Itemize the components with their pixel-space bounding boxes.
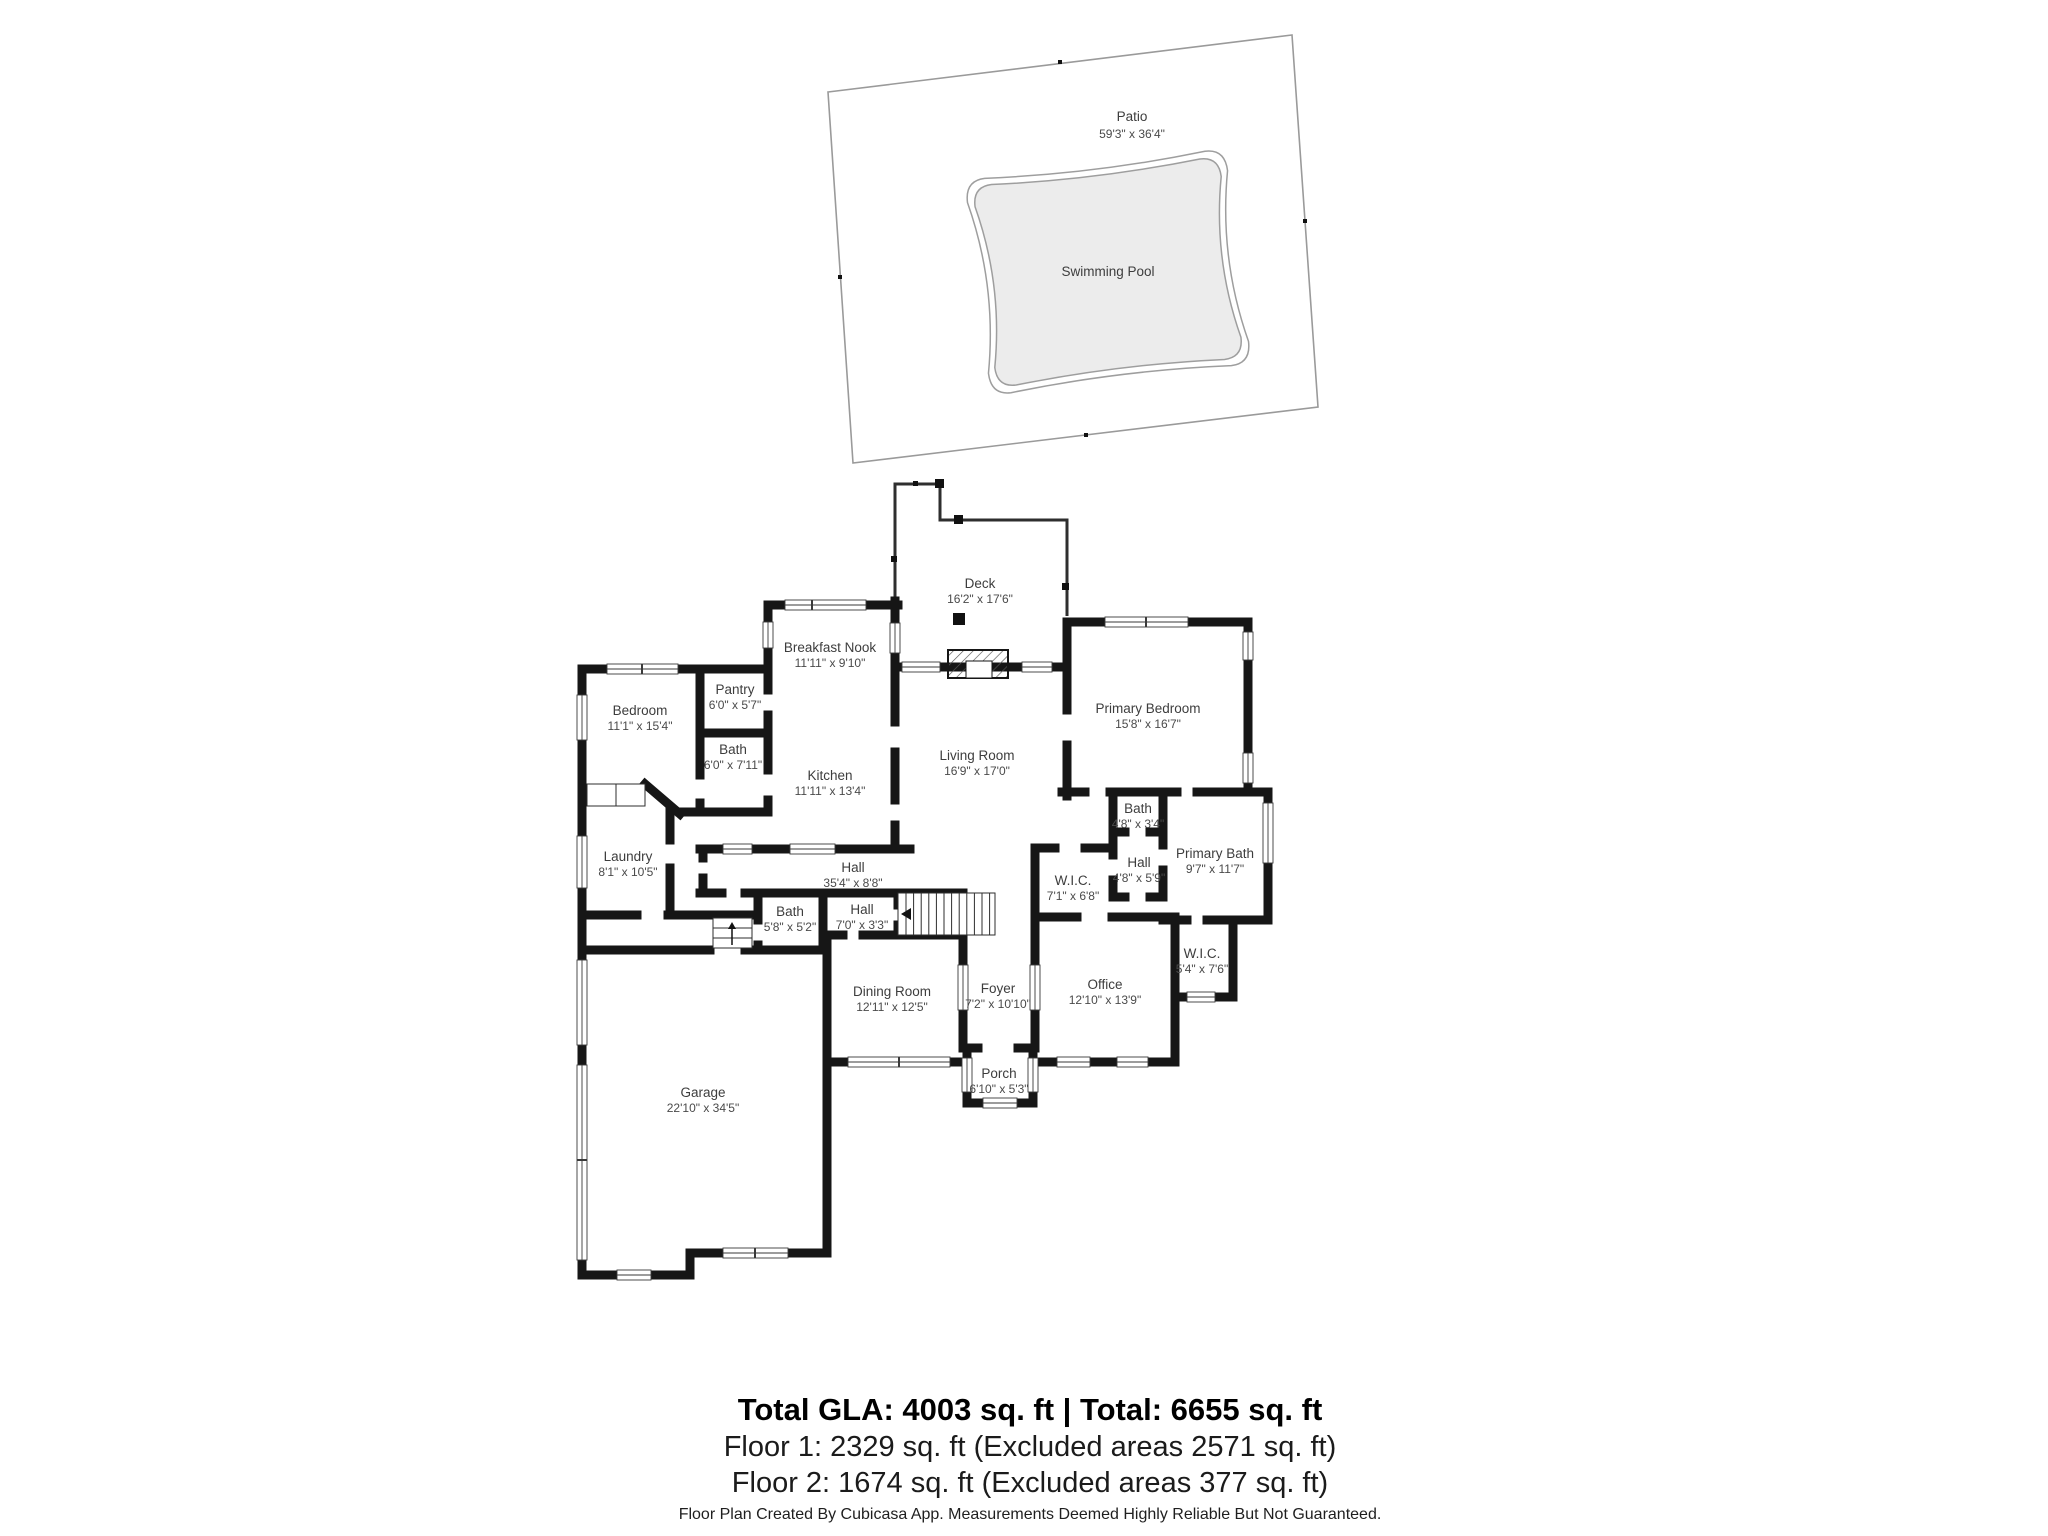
room-dims: 5'4" x 7'6": [1176, 962, 1228, 976]
room-dims: 4'8" x 3'4": [1112, 817, 1164, 831]
room-dims: 7'1" x 6'8": [1047, 889, 1099, 903]
room-label-hall1: Hall35'4" x 8'8": [823, 860, 882, 890]
room-dims: 11'1" x 15'4": [608, 719, 673, 733]
floorplan-canvas: Patio 59'3" x 36'4" Swimming Pool: [0, 0, 2048, 1536]
room-dims: 7'2" x 10'10": [965, 997, 1031, 1011]
room-label-living_room: Living Room16'9" x 17'0": [939, 748, 1014, 778]
room-label-kitchen: Kitchen11'11" x 13'4": [795, 768, 866, 798]
room-label-bath1: Bath6'0" x 7'11": [704, 742, 762, 772]
patio-label: Patio: [1117, 109, 1148, 124]
room-dims: 4'8" x 5'9": [1113, 871, 1165, 885]
room-dims: 16'2" x 17'6": [947, 592, 1013, 606]
room-name: Bedroom: [613, 703, 668, 718]
room-label-deck: Deck16'2" x 17'6": [947, 576, 1013, 606]
room-name: Hall: [1127, 855, 1150, 870]
room-label-hall2: Hall4'8" x 5'9": [1113, 855, 1165, 885]
wall-segment: [645, 784, 680, 814]
room-label-bath3: Bath5'8" x 5'2": [764, 904, 816, 934]
room-dims: 9'7" x 11'7": [1186, 862, 1244, 876]
room-name: Living Room: [939, 748, 1014, 763]
room-dims: 35'4" x 8'8": [823, 876, 882, 890]
room-label-hall3: Hall7'0" x 3'3": [836, 902, 888, 932]
room-dims: 6'0" x 7'11": [704, 758, 762, 772]
disclaimer-text: Floor Plan Created By Cubicasa App. Meas…: [0, 1506, 2048, 1524]
room-name: Primary Bath: [1176, 846, 1254, 861]
room-dims: 5'8" x 5'2": [764, 920, 816, 934]
floor2-area-text: Floor 2: 1674 sq. ft (Excluded areas 377…: [0, 1467, 2048, 1500]
room-name: W.I.C.: [1184, 946, 1221, 961]
room-name: Hall: [841, 860, 864, 875]
room-name: Hall: [850, 902, 873, 917]
room-name: Pantry: [715, 682, 754, 697]
room-name: Bath: [776, 904, 804, 919]
patio-area: Patio 59'3" x 36'4" Swimming Pool: [828, 35, 1318, 463]
room-label-porch: Porch6'10" x 5'3": [969, 1066, 1028, 1096]
staircase: [898, 893, 995, 935]
room-label-foyer: Foyer7'2" x 10'10": [965, 981, 1031, 1011]
bedroom-closet: [587, 784, 645, 806]
entry-steps: [713, 918, 752, 948]
room-name: W.I.C.: [1055, 873, 1092, 888]
room-label-wic1: W.I.C.7'1" x 6'8": [1047, 873, 1099, 903]
room-name: Garage: [680, 1085, 725, 1100]
room-name: Bath: [1124, 801, 1152, 816]
room-dims: 12'11" x 12'5": [856, 1000, 928, 1014]
patio-dims: 59'3" x 36'4": [1099, 127, 1165, 141]
room-name: Office: [1087, 977, 1122, 992]
room-label-primary_bath: Primary Bath9'7" x 11'7": [1176, 846, 1254, 876]
room-label-laundry: Laundry8'1" x 10'5": [598, 849, 657, 879]
room-name: Porch: [981, 1066, 1016, 1081]
room-dims: 16'9" x 17'0": [944, 764, 1010, 778]
room-label-bedroom: Bedroom11'1" x 15'4": [608, 703, 673, 733]
floor1-area-text: Floor 1: 2329 sq. ft (Excluded areas 257…: [0, 1431, 2048, 1464]
room-label-primary_bedroom: Primary Bedroom15'8" x 16'7": [1095, 701, 1200, 731]
fireplace: [948, 650, 1008, 678]
room-label-wic2: W.I.C.5'4" x 7'6": [1176, 946, 1228, 976]
room-name: Laundry: [604, 849, 653, 864]
room-name: Breakfast Nook: [784, 640, 877, 655]
room-name: Dining Room: [853, 984, 931, 999]
area-summary: Total GLA: 4003 sq. ft | Total: 6655 sq.…: [0, 1392, 2048, 1500]
room-dims: 6'10" x 5'3": [969, 1082, 1028, 1096]
total-gla-text: Total GLA: 4003 sq. ft | Total: 6655 sq.…: [0, 1392, 2048, 1428]
room-name: Bath: [719, 742, 747, 757]
room-label-garage: Garage22'10" x 34'5": [667, 1085, 740, 1115]
room-dims: 6'0" x 5'7": [709, 698, 761, 712]
room-dims: 15'8" x 16'7": [1115, 717, 1181, 731]
room-name: Kitchen: [807, 768, 852, 783]
room-name: Foyer: [981, 981, 1016, 996]
room-name: Primary Bedroom: [1095, 701, 1200, 716]
room-label-office: Office12'10" x 13'9": [1069, 977, 1142, 1007]
room-name: Deck: [965, 576, 996, 591]
room-label-bath2: Bath4'8" x 3'4": [1112, 801, 1164, 831]
room-dims: 7'0" x 3'3": [836, 918, 888, 932]
room-dims: 22'10" x 34'5": [667, 1101, 740, 1115]
room-label-dining_room: Dining Room12'11" x 12'5": [853, 984, 931, 1014]
room-label-pantry: Pantry6'0" x 5'7": [709, 682, 761, 712]
room-dims: 11'11" x 13'4": [795, 784, 866, 798]
swimming-pool-label: Swimming Pool: [1061, 264, 1154, 279]
floorplan-page: { "patio": { "name": "Patio", "dims": "5…: [0, 0, 2048, 1536]
room-dims: 11'11" x 9'10": [795, 656, 866, 670]
room-dims: 12'10" x 13'9": [1069, 993, 1142, 1007]
room-dims: 8'1" x 10'5": [598, 865, 657, 879]
room-label-breakfast_nook: Breakfast Nook11'11" x 9'10": [784, 640, 877, 670]
